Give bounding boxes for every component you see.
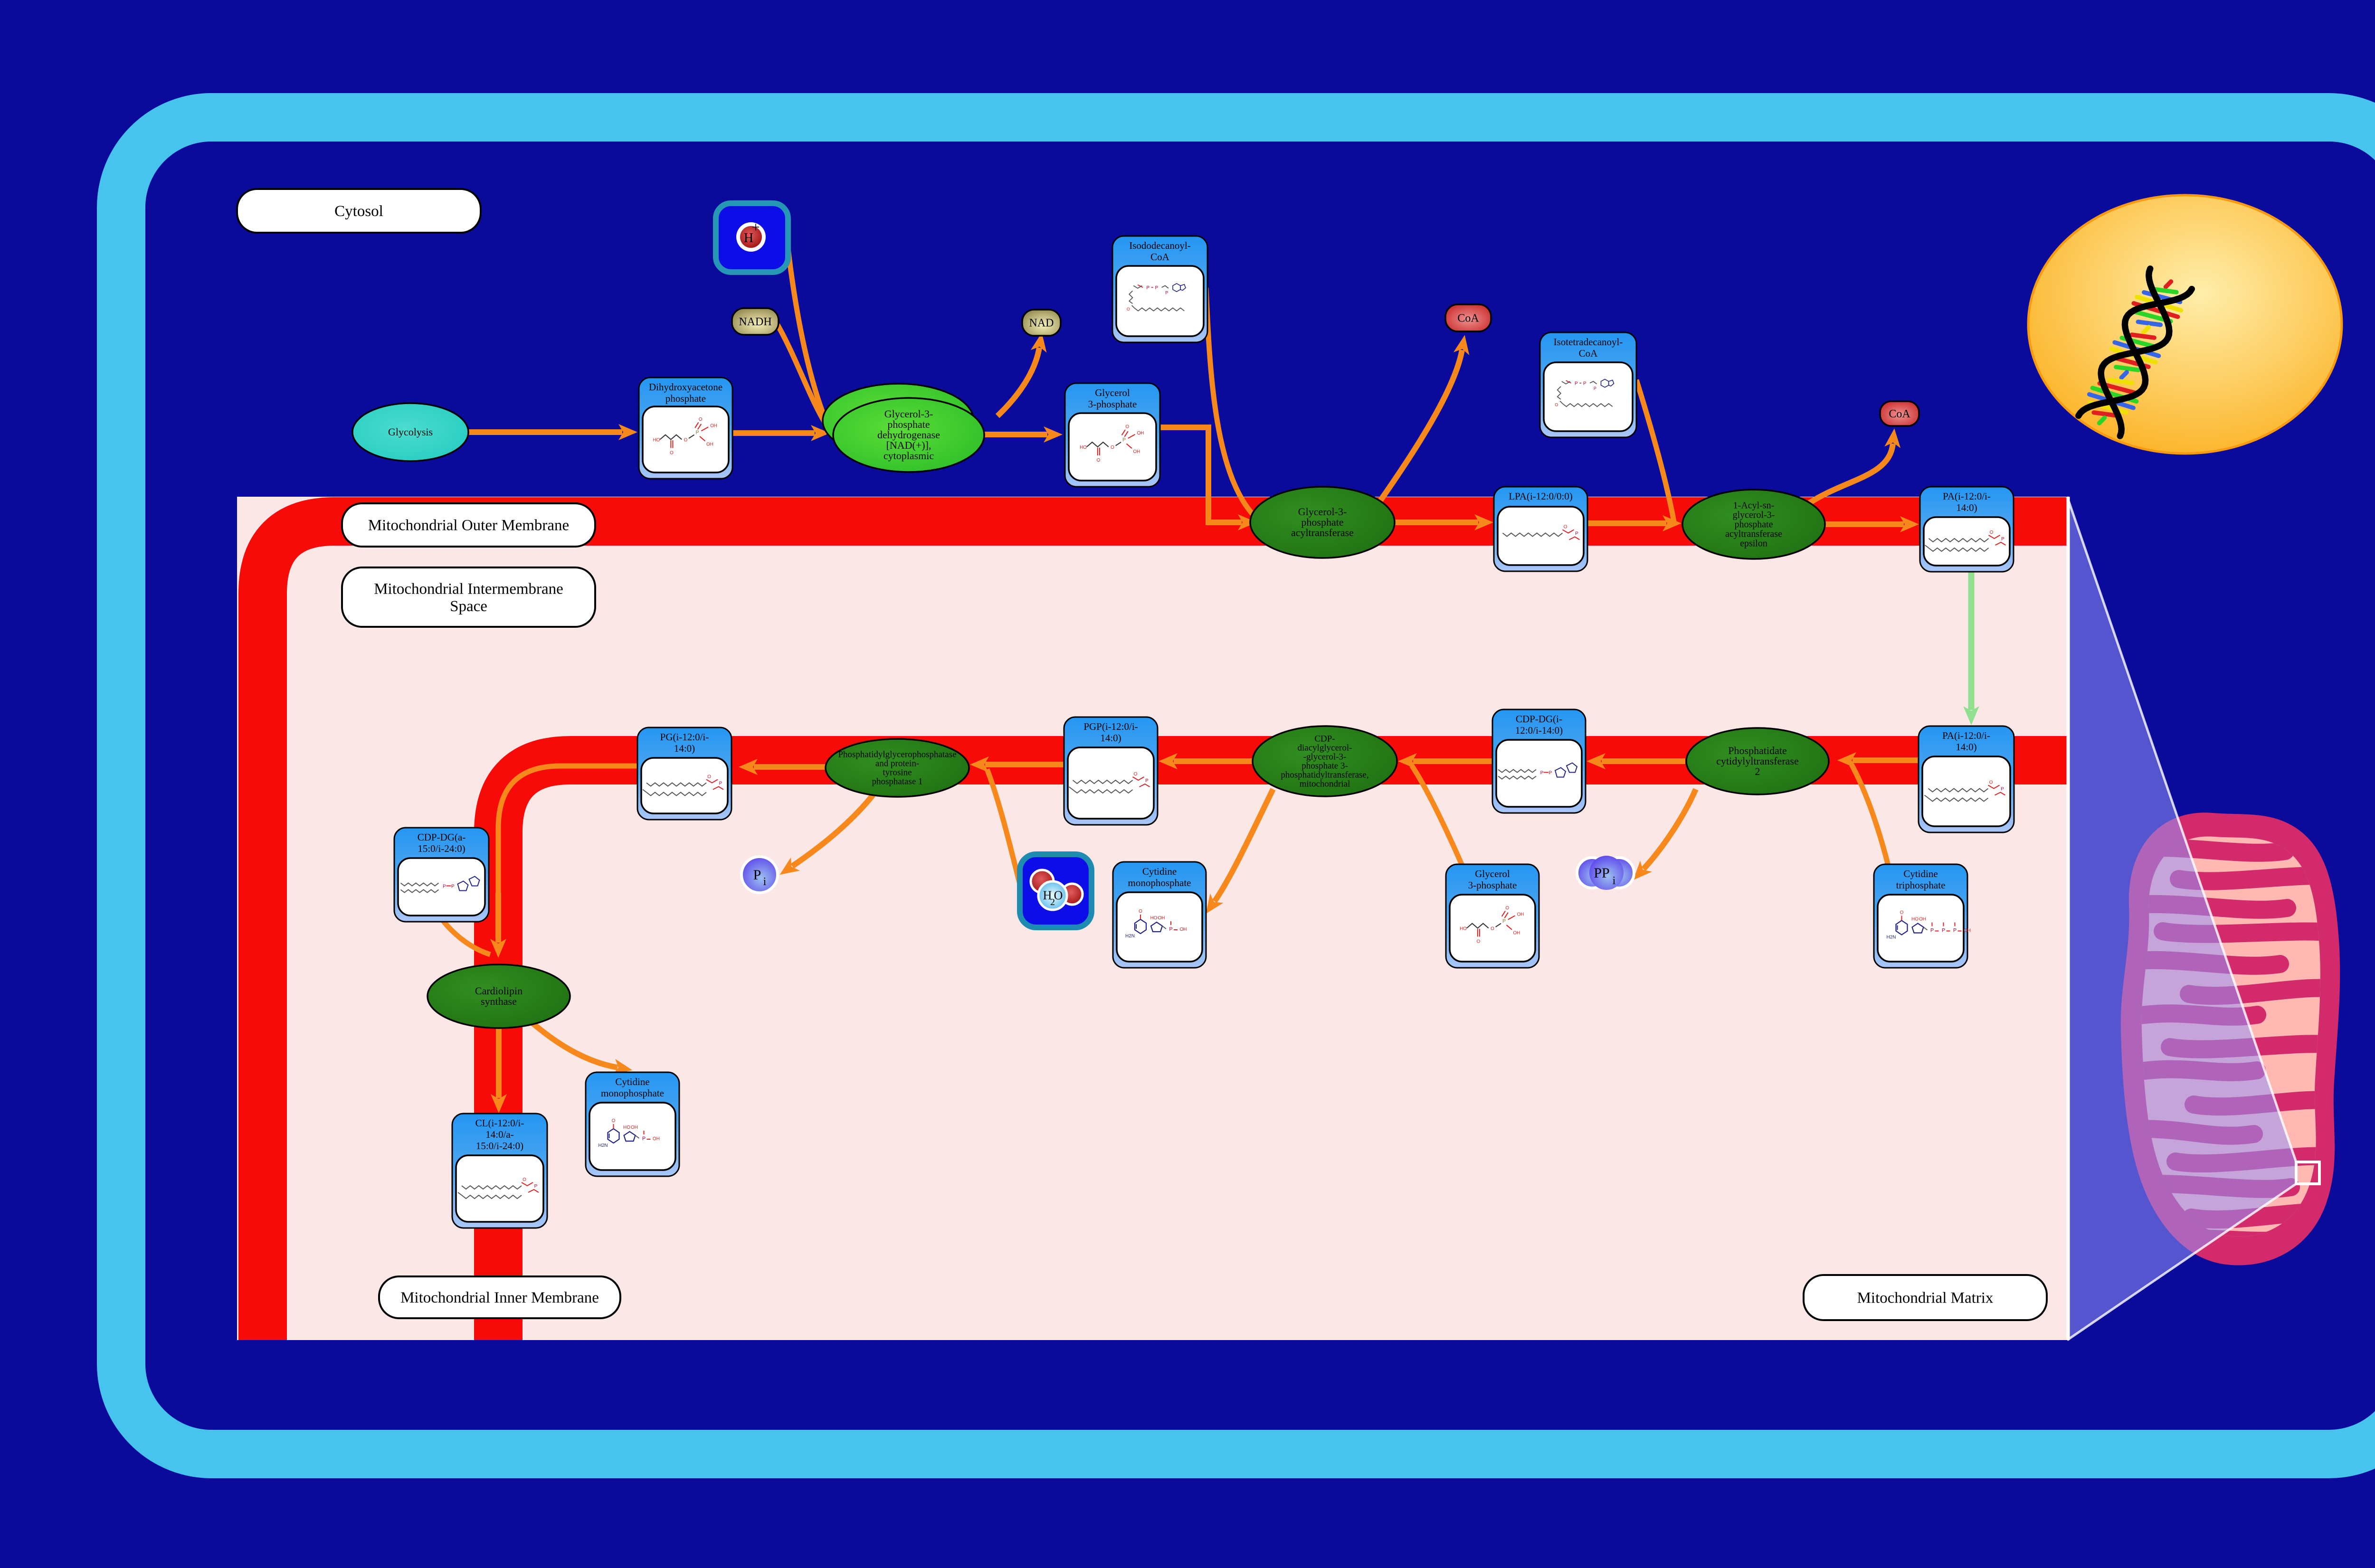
svg-text:P: P <box>534 1184 538 1189</box>
svg-text:Mitochondrial Inner Membrane: Mitochondrial Inner Membrane <box>400 1289 599 1306</box>
svg-text:O: O <box>699 417 703 422</box>
svg-text:Mitochondrial Outer Membrane: Mitochondrial Outer Membrane <box>368 517 569 534</box>
svg-text:OH: OH <box>1964 928 1971 934</box>
svg-text:Mitochondrial Matrix: Mitochondrial Matrix <box>1857 1290 1994 1307</box>
svg-text:P: P <box>451 884 455 889</box>
svg-text:O: O <box>1477 939 1481 945</box>
svg-text:P: P <box>1169 926 1172 932</box>
svg-text:Glycolysis: Glycolysis <box>388 426 433 438</box>
svg-text:O: O <box>1097 458 1101 463</box>
svg-text:P: P <box>1540 771 1544 776</box>
svg-text:CDP-DG(i-12:0/i-14:0): CDP-DG(i-12:0/i-14:0) <box>1515 713 1563 736</box>
svg-text:O: O <box>522 1177 526 1182</box>
svg-text:P: P <box>1165 291 1168 295</box>
svg-text:OH: OH <box>1137 431 1144 436</box>
svg-text:P: P <box>1942 928 1945 934</box>
svg-text:P: P <box>753 867 761 883</box>
svg-text:P: P <box>642 1136 646 1142</box>
svg-text:O: O <box>1125 425 1129 430</box>
svg-text:P: P <box>443 884 446 889</box>
svg-text:O: O <box>1054 888 1063 902</box>
svg-text:P: P <box>2001 787 2004 792</box>
svg-text:OH: OH <box>1919 917 1926 922</box>
svg-text:NADH: NADH <box>739 316 771 328</box>
svg-text:O: O <box>1505 906 1509 911</box>
svg-text:O: O <box>670 451 674 456</box>
svg-text:CoA: CoA <box>1889 408 1910 420</box>
svg-text:O: O <box>1555 402 1558 407</box>
svg-text:O: O <box>1989 780 1993 785</box>
svg-text:Glycerol3-phosphate: Glycerol3-phosphate <box>1468 868 1517 891</box>
svg-text:P: P <box>696 430 699 435</box>
svg-text:OH: OH <box>1513 931 1520 936</box>
svg-text:O: O <box>1491 926 1494 932</box>
svg-text:LPA(i-12:0/0:0): LPA(i-12:0/0:0) <box>1509 491 1573 502</box>
svg-text:O: O <box>707 775 711 780</box>
svg-text:HO: HO <box>1911 917 1919 922</box>
svg-text:P: P <box>1930 928 1934 934</box>
svg-text:P: P <box>2001 537 2004 542</box>
svg-text:HO: HO <box>653 438 660 443</box>
svg-text:HO: HO <box>623 1125 630 1130</box>
svg-text:H2N: H2N <box>1886 935 1896 940</box>
svg-text:O: O <box>1139 909 1142 914</box>
svg-text:P: P <box>1575 531 1578 537</box>
svg-text:O: O <box>1564 525 1567 530</box>
svg-text:i: i <box>1613 875 1616 887</box>
svg-text:Cytosol: Cytosol <box>334 203 383 220</box>
svg-text:Glycerol3-phosphate: Glycerol3-phosphate <box>1088 387 1137 410</box>
svg-text:OH: OH <box>653 1136 660 1142</box>
svg-text:O: O <box>1111 445 1114 450</box>
svg-text:O: O <box>1900 910 1904 916</box>
svg-text:H2N: H2N <box>598 1143 608 1148</box>
svg-text:OH: OH <box>631 1125 638 1130</box>
svg-text:P: P <box>1122 437 1126 443</box>
svg-text:CDP-DG(a-15:0/i-24:0): CDP-DG(a-15:0/i-24:0) <box>418 831 465 854</box>
svg-text:OH: OH <box>1517 912 1524 917</box>
svg-text:P: P <box>1575 381 1578 386</box>
svg-text:O: O <box>684 438 688 443</box>
svg-text:HO: HO <box>1080 445 1087 450</box>
svg-text:P: P <box>1155 285 1158 291</box>
svg-text:P: P <box>719 781 722 786</box>
svg-text:+: + <box>752 219 760 235</box>
svg-text:PP: PP <box>1594 865 1609 881</box>
svg-text:CoA: CoA <box>1457 312 1479 325</box>
svg-text:P: P <box>1145 778 1149 784</box>
svg-text:Glycerol-3-phosphatedehydrogen: Glycerol-3-phosphatedehydrogenase[NAD(+)… <box>877 408 940 462</box>
svg-text:O: O <box>1134 772 1138 777</box>
svg-text:O: O <box>1990 530 1994 535</box>
svg-text:OH: OH <box>1180 927 1187 932</box>
svg-text:P: P <box>1953 928 1957 934</box>
svg-text:HO: HO <box>1150 916 1158 921</box>
svg-text:P: P <box>1502 918 1506 924</box>
svg-text:Cardiolipinsynthase: Cardiolipinsynthase <box>475 985 522 1007</box>
svg-text:i: i <box>763 876 767 888</box>
svg-text:H2N: H2N <box>1125 934 1135 939</box>
svg-text:HO: HO <box>1460 926 1467 932</box>
svg-text:O: O <box>612 1118 616 1124</box>
svg-text:P: P <box>1583 381 1586 386</box>
svg-text:P: P <box>1146 285 1149 291</box>
svg-text:NAD: NAD <box>1029 317 1054 330</box>
svg-text:O: O <box>1127 307 1130 312</box>
svg-text:P: P <box>1549 771 1552 776</box>
svg-text:OH: OH <box>1158 916 1165 921</box>
svg-text:OH: OH <box>706 442 713 447</box>
svg-text:OH: OH <box>710 423 717 428</box>
svg-text:P: P <box>1594 386 1596 391</box>
svg-text:OH: OH <box>1133 449 1140 454</box>
